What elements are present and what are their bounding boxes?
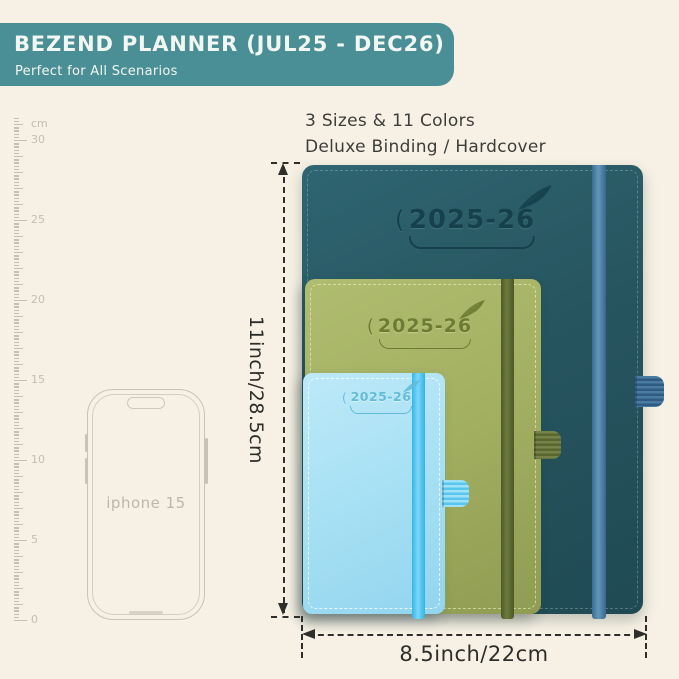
ruler-tick [14, 406, 19, 407]
ruler-tick [14, 550, 19, 551]
ruler-tick [14, 204, 23, 205]
ruler-tick [14, 473, 19, 474]
ruler-tick [14, 422, 19, 423]
width-dimension-label: 8.5inch/22cm [399, 642, 548, 666]
ruler-tick [14, 537, 19, 538]
arrow-up-icon [278, 163, 288, 175]
arrow-left-icon [302, 629, 315, 639]
ruler-tick [14, 239, 19, 240]
ruler-tick [14, 223, 19, 224]
ruler-tick [14, 233, 19, 234]
power-button [205, 438, 208, 484]
ruler-tick [14, 188, 23, 189]
ruler-tick [14, 316, 23, 317]
ruler-tick [14, 572, 23, 573]
ruler-tick [14, 130, 19, 131]
ruler-tick [14, 169, 19, 170]
ruler-tick [14, 575, 19, 576]
ruler-tick [14, 278, 19, 279]
ruler-tick [14, 249, 19, 250]
ruler-tick [14, 588, 23, 589]
ruler-tick [14, 409, 19, 410]
ruler-tick-label: 5 [31, 533, 38, 546]
ruler-tick [14, 450, 19, 451]
ruler-tick [14, 610, 19, 611]
ruler-tick [14, 489, 19, 490]
ruler-tick [14, 617, 19, 618]
elastic-band [412, 373, 425, 619]
logo-bracket [379, 339, 471, 349]
ruler-tick [14, 220, 27, 221]
ruler-tick [14, 393, 19, 394]
ruler-tick [14, 386, 19, 387]
ruler-tick [14, 569, 19, 570]
ruler-tick-label: 30 [31, 133, 45, 146]
ruler-tick [14, 511, 19, 512]
ruler-tick [14, 348, 23, 349]
ruler-tick [14, 185, 19, 186]
ruler-tick [14, 594, 19, 595]
ruler-tick [14, 358, 19, 359]
header-banner: BEZEND PLANNER (JUL25 - DEC26) Perfect f… [0, 23, 454, 86]
ruler-tick [14, 329, 19, 330]
ruler-tick [14, 230, 19, 231]
ruler-tick [14, 284, 23, 285]
height-dimension-line [283, 167, 285, 613]
ruler-tick [14, 556, 23, 557]
year-logo: 2025-26 ( [350, 391, 412, 414]
pen-loop [534, 431, 561, 459]
ruler-tick [14, 377, 19, 378]
ruler-tick [14, 585, 19, 586]
ruler-tick [14, 338, 19, 339]
ruler-tick [14, 607, 19, 608]
iphone-label: iphone 15 [88, 494, 204, 512]
ruler-tick [14, 415, 19, 416]
ruler-tick [14, 351, 19, 352]
ruler-tick [14, 342, 19, 343]
ruler-tick [14, 412, 23, 413]
ruler-tick [14, 367, 19, 368]
ruler-tick [14, 505, 19, 506]
ruler: 302520151050 [14, 0, 64, 679]
volume-button-down [85, 458, 88, 484]
ruler-tick [14, 326, 19, 327]
ruler-tick [14, 207, 19, 208]
ruler-tick [14, 313, 19, 314]
ruler-tick [14, 601, 19, 602]
ruler-tick [14, 598, 19, 599]
ruler-tick [14, 460, 27, 461]
ruler-tick [14, 322, 19, 323]
ruler-tick [14, 335, 19, 336]
ruler-tick [14, 194, 19, 195]
ruler-tick [14, 150, 19, 151]
ruler-tick [14, 383, 19, 384]
ruler-tick [14, 441, 19, 442]
ruler-tick [14, 156, 23, 157]
ruler-tick [14, 121, 19, 122]
ruler-tick [14, 495, 19, 496]
ruler-tick [14, 290, 19, 291]
ruler-tick [14, 521, 19, 522]
ruler-tick [14, 530, 19, 531]
ruler-tick [14, 143, 19, 144]
ruler-tick [14, 486, 19, 487]
ruler-tick [14, 182, 19, 183]
height-dimension-label: 11inch/28.5cm [245, 316, 267, 464]
ruler-tick [14, 300, 27, 301]
ruler-tick-label: 10 [31, 453, 45, 466]
ruler-tick [14, 226, 19, 227]
width-dimension-tick-left [301, 616, 303, 658]
ruler-tick [14, 274, 19, 275]
ruler-tick [14, 217, 19, 218]
ruler-tick [14, 201, 19, 202]
ruler-tick [14, 431, 19, 432]
ruler-tick [14, 265, 19, 266]
logo-arc-mark: ( [395, 206, 404, 234]
ruler-tick [14, 620, 27, 621]
ruler-tick [14, 444, 23, 445]
ruler-tick [14, 374, 19, 375]
ruler-tick [14, 252, 23, 253]
iphone-outline: iphone 15 [87, 389, 205, 620]
feature-text: 3 Sizes & 11 Colors Deluxe Binding / Har… [305, 108, 546, 160]
ruler-tick [14, 380, 27, 381]
logo-bracket [409, 236, 535, 249]
ruler-tick [14, 566, 19, 567]
ruler-tick [14, 236, 23, 237]
feather-icon [458, 299, 486, 320]
ruler-tick [14, 578, 19, 579]
ruler-tick [14, 146, 19, 147]
ruler-tick [14, 198, 19, 199]
ruler-tick-label: 20 [31, 293, 45, 306]
year-logo: 2025-26 ( [409, 207, 535, 249]
feather-icon [517, 184, 553, 211]
ruler-tick [14, 396, 23, 397]
ruler-tick [14, 210, 19, 211]
ruler-tick [14, 140, 27, 141]
ruler-tick [14, 242, 19, 243]
feature-line-sizes: 3 Sizes & 11 Colors [305, 108, 546, 134]
logo-bracket [350, 406, 412, 414]
ruler-tick [14, 591, 19, 592]
ruler-tick [14, 454, 19, 455]
ruler-tick [14, 262, 19, 263]
ruler-tick [14, 332, 23, 333]
ruler-tick [14, 399, 19, 400]
ruler-tick [14, 390, 19, 391]
elastic-band [501, 279, 514, 619]
ruler-tick [14, 364, 23, 365]
ruler-tick [14, 345, 19, 346]
ruler-tick-label: 15 [31, 373, 45, 386]
ruler-tick [14, 255, 19, 256]
height-dimension-tick-top [271, 162, 300, 164]
page-title: BEZEND PLANNER (JUL25 - DEC26) [14, 32, 445, 56]
ruler-tick [14, 268, 23, 269]
ruler-tick [14, 604, 23, 605]
ruler-tick [14, 466, 19, 467]
ruler-tick [14, 166, 19, 167]
ruler-tick [14, 402, 19, 403]
ruler-tick [14, 310, 19, 311]
ruler-tick [14, 514, 19, 515]
ruler-tick [14, 559, 19, 560]
ruler-tick [14, 271, 19, 272]
ruler-tick [14, 614, 19, 615]
ruler-tick [14, 191, 19, 192]
logo-arc-mark: ( [342, 391, 347, 405]
ruler-tick [14, 370, 19, 371]
ruler-tick [14, 553, 19, 554]
ruler-tick [14, 527, 19, 528]
ruler-tick [14, 498, 19, 499]
ruler-tick [14, 492, 23, 493]
ruler-tick [14, 518, 19, 519]
ruler-tick [14, 418, 19, 419]
ruler-tick [14, 306, 19, 307]
dynamic-island [127, 397, 165, 409]
ruler-tick [14, 303, 19, 304]
ruler-tick [14, 162, 19, 163]
ruler-tick [14, 582, 19, 583]
ruler-tick [14, 127, 19, 128]
ruler-tick [14, 361, 19, 362]
ruler-tick [14, 281, 19, 282]
ruler-tick [14, 476, 23, 477]
ruler-tick [14, 137, 19, 138]
home-indicator [129, 611, 163, 615]
ruler-tick [14, 482, 19, 483]
ruler-tick [14, 470, 19, 471]
ruler-tick [14, 172, 23, 173]
volume-button-up [85, 434, 88, 452]
ruler-tick [14, 246, 19, 247]
year-logo: 2025-26 ( [378, 317, 472, 349]
ruler-tick [14, 354, 19, 355]
feature-line-binding: Deluxe Binding / Hardcover [305, 134, 546, 160]
ruler-tick [14, 134, 19, 135]
pen-loop [442, 480, 469, 507]
pen-loop [635, 376, 664, 407]
ruler-tick [14, 479, 19, 480]
ruler-tick [14, 534, 19, 535]
ruler-tick [14, 447, 19, 448]
ruler-tick [14, 463, 19, 464]
ruler-tick [14, 540, 27, 541]
ruler-tick [14, 434, 19, 435]
ruler-tick [14, 562, 19, 563]
ruler-tick [14, 457, 19, 458]
ruler-tick [14, 508, 23, 509]
feather-icon [402, 379, 421, 393]
ruler-tick [14, 319, 19, 320]
ruler-tick [14, 258, 19, 259]
ruler-tick [14, 543, 19, 544]
ruler-tick [14, 175, 19, 176]
ruler-tick [14, 159, 19, 160]
ruler-tick [14, 438, 19, 439]
ruler-tick [14, 153, 19, 154]
arrow-down-icon [278, 603, 288, 615]
ruler-tick [14, 297, 19, 298]
ruler-tick [14, 294, 19, 295]
ruler-tick [14, 428, 23, 429]
logo-arc-mark: ( [367, 316, 374, 337]
ruler-tick [14, 124, 23, 125]
width-dimension-line [308, 634, 640, 636]
ruler-unit-label: cm [31, 117, 48, 130]
ruler-tick-label: 25 [31, 213, 45, 226]
ruler-tick [14, 214, 19, 215]
ruler-tick [14, 178, 19, 179]
ruler-tick [14, 524, 23, 525]
height-dimension-tick-bottom [271, 616, 300, 618]
ruler-tick [14, 546, 19, 547]
elastic-band [592, 165, 606, 619]
ruler-tick [14, 425, 19, 426]
product-image: BEZEND PLANNER (JUL25 - DEC26) Perfect f… [0, 0, 679, 679]
ruler-tick-label: 0 [31, 613, 38, 626]
planner-small: 2025-26 ( [303, 373, 445, 614]
ruler-tick [14, 502, 19, 503]
width-dimension-tick-right [645, 616, 647, 658]
ruler-tick [14, 287, 19, 288]
ruler-tick [14, 118, 19, 119]
